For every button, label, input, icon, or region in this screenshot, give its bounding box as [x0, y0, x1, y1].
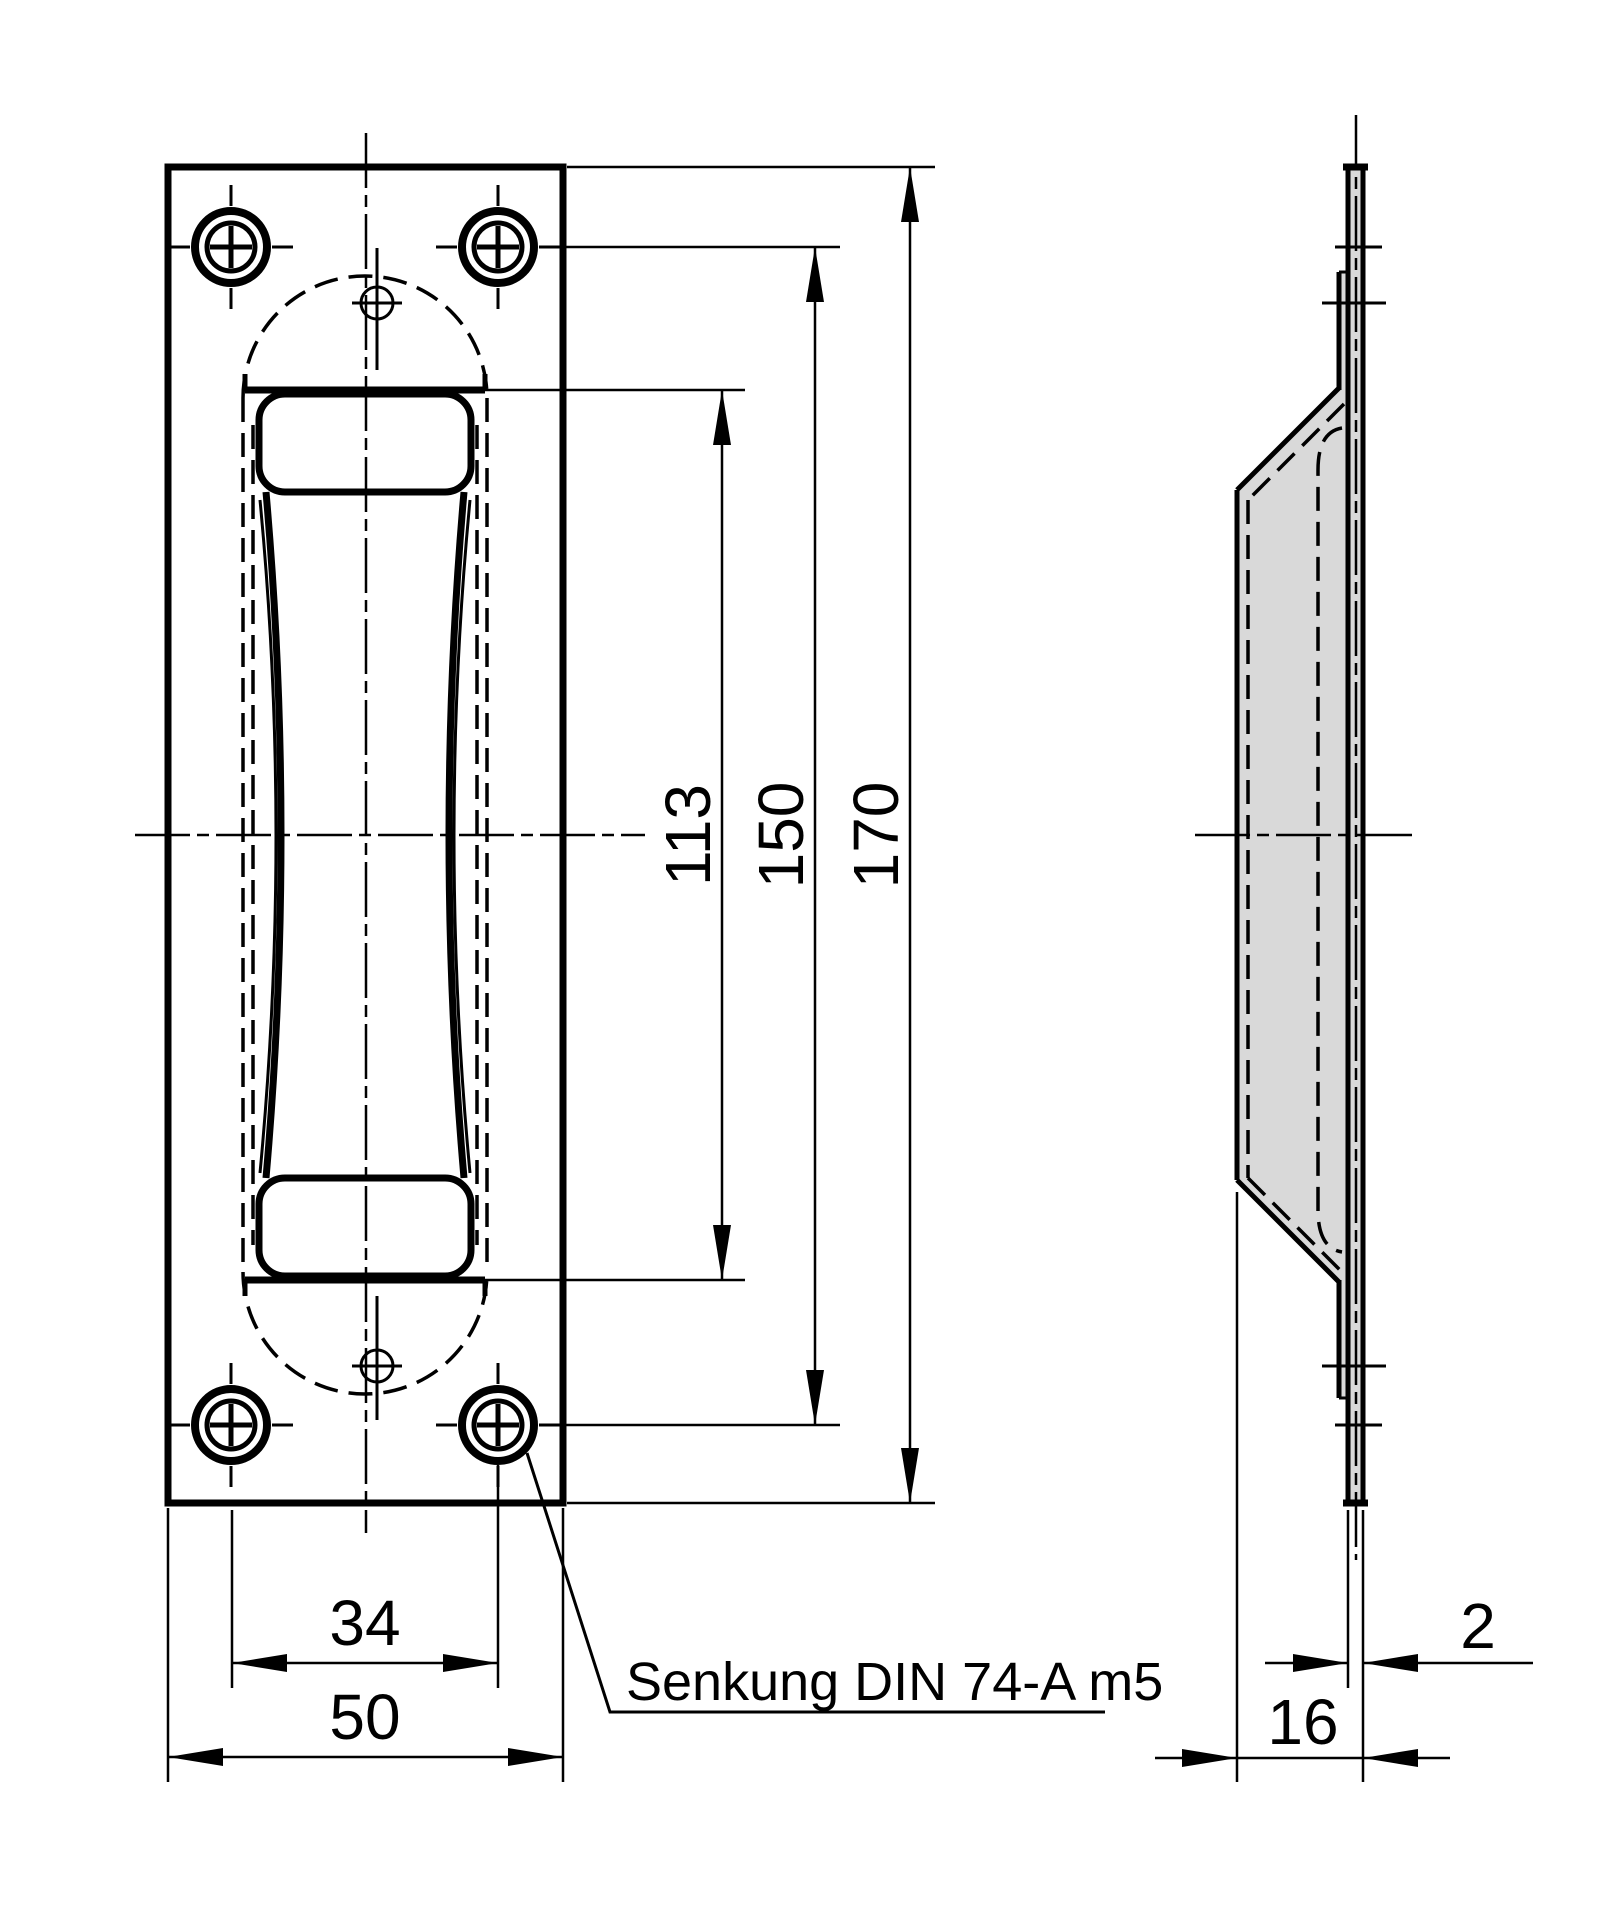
countersink-note-label: Senkung DIN 74-A m5: [626, 1652, 1163, 1712]
dim-34-label: 34: [329, 1587, 400, 1659]
dim-150-label: 150: [745, 782, 817, 889]
dim-170-label: 170: [840, 782, 912, 889]
dim-2-label: 2: [1460, 1590, 1496, 1662]
dim-16-label: 16: [1267, 1686, 1338, 1758]
dim-113-label: 113: [652, 784, 724, 886]
dim-50-label: 50: [329, 1681, 400, 1753]
technical-drawing-flush-pull: 113 150 170 34 50: [0, 0, 1600, 1908]
